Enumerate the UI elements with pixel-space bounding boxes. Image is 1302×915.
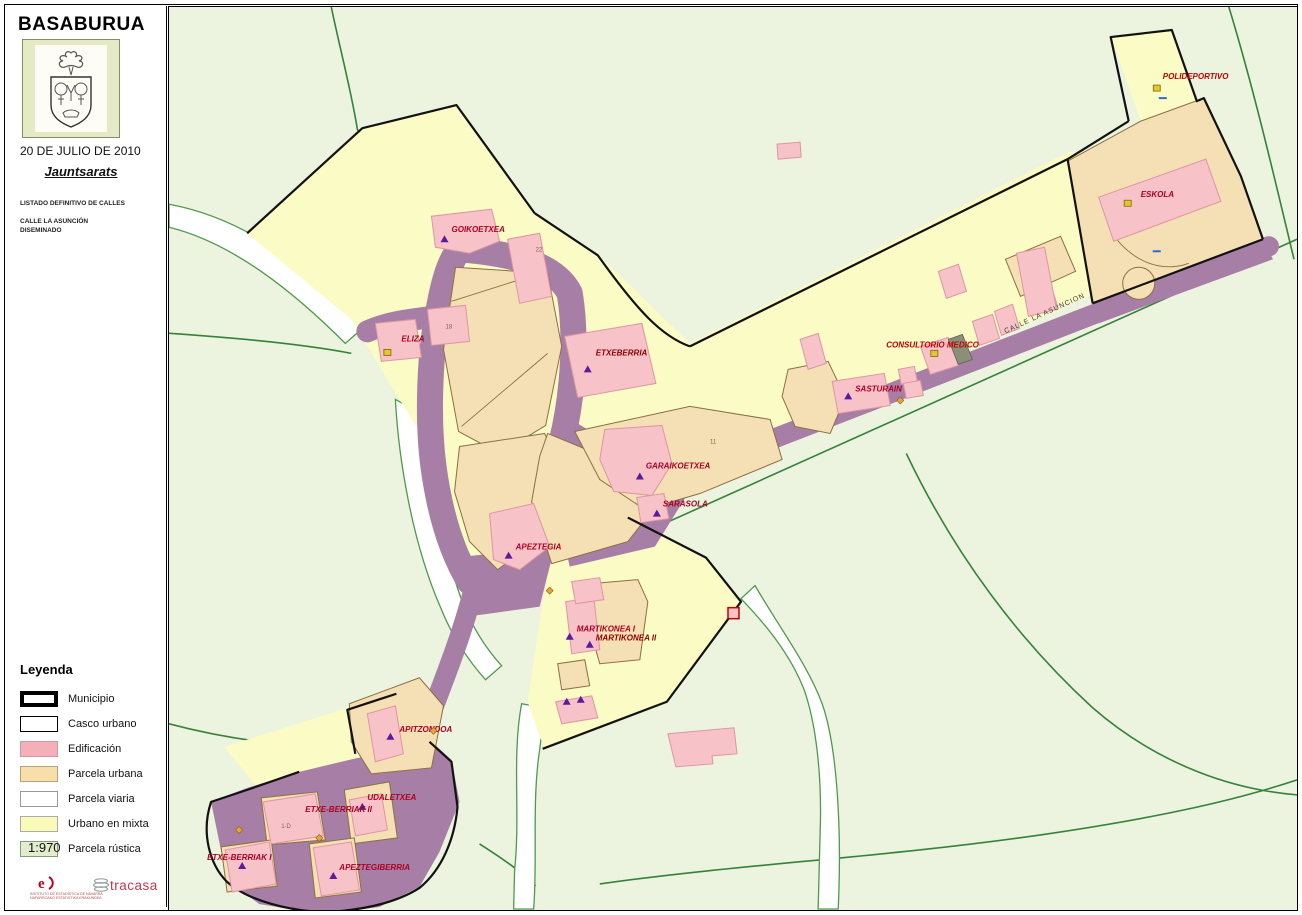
map-label: GARAIKOETXEA: [646, 462, 711, 471]
map-label: ESKOLA: [1141, 190, 1175, 199]
diseminado-label: DISEMINADO: [20, 227, 62, 234]
map-label: APEZTEGIBERRIA: [338, 863, 410, 872]
doc-type-label: LISTADO DEFINITIVO DE CALLES: [20, 200, 125, 207]
parcel-number: 18: [445, 324, 452, 330]
tracasa-logo: tracasa: [92, 876, 158, 894]
legend-title: Leyenda: [20, 662, 73, 677]
tracasa-logo-text: tracasa: [110, 878, 158, 893]
legend-item: Municipio: [20, 686, 160, 711]
parcel-number: 11: [710, 439, 717, 445]
ien-caption-2: NAFARROAKO ESTATISTIKA ERAKUNDEA: [30, 896, 102, 900]
tracasa-globe-icon: [92, 876, 110, 894]
parcel-number: 1-D: [281, 824, 291, 830]
legend-label: Edificación: [68, 743, 121, 755]
map-label: POLIDEPORTIVO: [1163, 72, 1229, 81]
map-label: CONSULTORIO MEDICO: [886, 340, 979, 349]
map-label: ETXE-BERRIAK I: [207, 853, 272, 862]
legend-label: Municipio: [68, 693, 114, 705]
label-marker-square: [1153, 85, 1160, 91]
map-label: SASTURAIN: [855, 384, 902, 393]
map-label: ETXE-BERRIAK II: [305, 805, 372, 814]
legend-swatch: [20, 691, 58, 707]
legend-label: Parcela urbana: [68, 768, 143, 780]
legend-label: Casco urbano: [68, 718, 137, 730]
map-label: GOIKOETXEA: [452, 225, 506, 234]
map-label: APEZTEGIA: [515, 543, 562, 552]
legend-item: Parcela viaria: [20, 786, 160, 811]
map-date: 20 DE JULIO DE 2010: [20, 144, 141, 158]
legend-swatch: [20, 741, 58, 757]
coat-of-arms-image: [35, 45, 107, 132]
legend-label: Urbano en mixta: [68, 818, 149, 830]
map-panel[interactable]: GOIKOETXEAELIZAETXEBERRIAPOLIDEPORTIVOES…: [168, 6, 1298, 911]
map-label: ETXEBERRIA: [596, 348, 648, 357]
shield-icon: [39, 49, 103, 129]
parcel-number: 22: [536, 247, 543, 253]
sidebar: BASABURUA 20 DE JULIO DE 2010 Jauntsarat…: [6, 6, 167, 907]
legend-item: Urbano en mixta: [20, 811, 160, 836]
map-scale: 1:970: [28, 840, 61, 855]
legend-item: Parcela urbana: [20, 761, 160, 786]
legend-swatch: [20, 791, 58, 807]
cadastral-map: GOIKOETXEAELIZAETXEBERRIAPOLIDEPORTIVOES…: [169, 7, 1297, 910]
street-name-label: CALLE LA ASUNCIÓN: [20, 218, 88, 225]
legend-label: Parcela rústica: [68, 843, 141, 855]
legend-item: Casco urbano: [20, 711, 160, 736]
svg-text:e: e: [38, 876, 45, 892]
legend-label: Parcela viaria: [68, 793, 135, 805]
coat-of-arms: [22, 39, 120, 138]
label-marker-square: [931, 350, 938, 356]
map-label: SARASOLA: [663, 500, 708, 509]
locality-name: Jauntsarats: [6, 164, 156, 179]
label-marker-square: [1124, 200, 1131, 206]
blue-annotation-mark: [1159, 97, 1167, 99]
ien-logo-icon: e: [30, 874, 70, 892]
ien-logo: e INSTITUTO DE ESTADÍSTICA DE NAVARRA NA…: [30, 874, 90, 897]
map-label: MARTIKONEA II: [596, 634, 657, 643]
map-label: MARTIKONEA I: [577, 625, 636, 634]
logos-row: e INSTITUTO DE ESTADÍSTICA DE NAVARRA NA…: [16, 874, 160, 904]
legend-swatch: [20, 716, 58, 732]
legend: MunicipioCasco urbanoEdificaciónParcela …: [20, 686, 160, 861]
small-marked-parcel: [728, 608, 739, 619]
blue-annotation-mark: [1153, 250, 1161, 252]
legend-swatch: [20, 766, 58, 782]
map-label: UDALETXEA: [367, 793, 416, 802]
map-label: APITZONDOA: [398, 725, 452, 734]
map-label: ELIZA: [401, 334, 424, 343]
legend-swatch: [20, 816, 58, 832]
legend-item: Edificación: [20, 736, 160, 761]
label-marker-square: [384, 349, 391, 355]
municipality-title: BASABURUA: [18, 14, 145, 36]
